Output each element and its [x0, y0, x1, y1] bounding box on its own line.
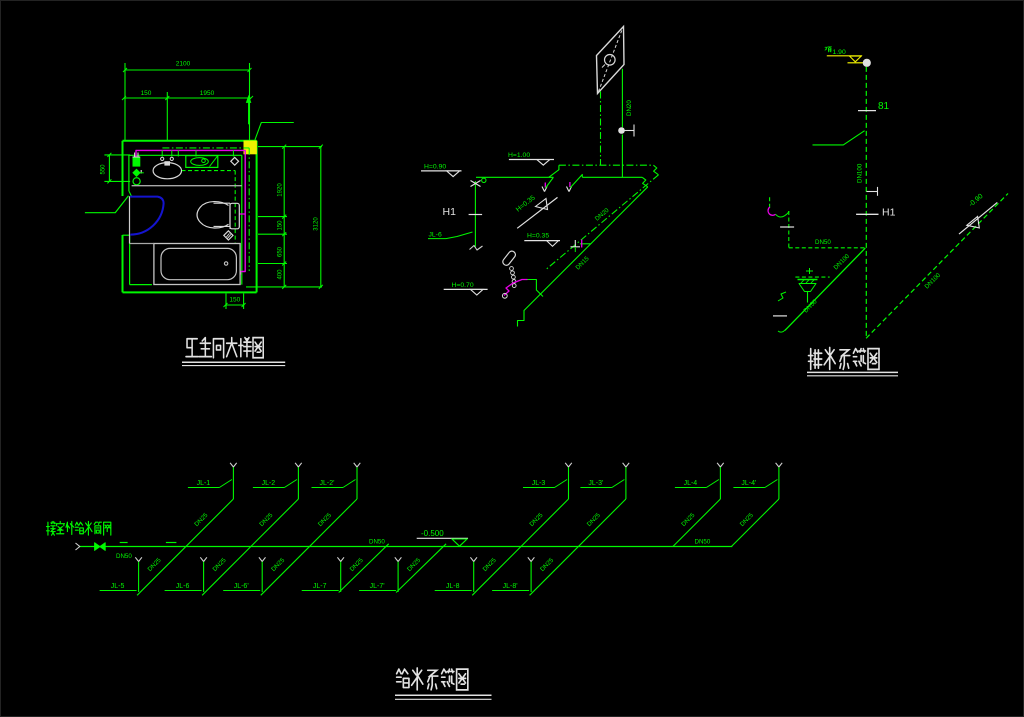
svg-text:JL-7: JL-7 [313, 583, 327, 590]
svg-text:DN100: DN100 [857, 163, 864, 183]
svg-text:2100: 2100 [176, 61, 191, 68]
svg-text:DN50: DN50 [116, 553, 132, 560]
svg-text:DN50: DN50 [369, 539, 385, 546]
svg-text:150: 150 [141, 90, 152, 97]
svg-text:3120: 3120 [314, 217, 320, 231]
svg-text:H1: H1 [882, 207, 896, 219]
svg-text:DN50: DN50 [695, 539, 711, 546]
svg-text:H1: H1 [443, 206, 457, 218]
svg-text:400: 400 [278, 269, 284, 280]
svg-text:1920: 1920 [278, 183, 284, 197]
svg-text:H=0.70: H=0.70 [452, 282, 474, 289]
svg-text:150: 150 [229, 297, 240, 304]
svg-text:DN20: DN20 [626, 100, 633, 116]
svg-text:JL-8': JL-8' [503, 583, 518, 590]
svg-text:550: 550 [101, 164, 107, 175]
svg-text:JL-3': JL-3' [588, 480, 603, 487]
svg-text:JL-6: JL-6 [429, 232, 442, 239]
svg-text:150: 150 [278, 220, 284, 231]
svg-text:JL-6': JL-6' [234, 583, 249, 590]
svg-text:JL-5: JL-5 [111, 583, 125, 590]
svg-text:H=0.90: H=0.90 [424, 164, 446, 171]
svg-text:1950: 1950 [200, 90, 215, 97]
svg-text:JL-3: JL-3 [532, 480, 546, 487]
svg-text:-0.500: -0.500 [421, 529, 444, 538]
svg-text:JL-2: JL-2 [262, 480, 276, 487]
svg-text:JL-2': JL-2' [320, 480, 335, 487]
svg-text:81: 81 [878, 101, 890, 112]
svg-text:JL-7': JL-7' [370, 583, 385, 590]
svg-text:DN50: DN50 [815, 239, 831, 246]
svg-text:1.90: 1.90 [833, 49, 846, 56]
svg-text:JL-8: JL-8 [446, 583, 460, 590]
svg-text:JL-4': JL-4' [741, 480, 756, 487]
svg-text:H=0.35: H=0.35 [527, 233, 549, 240]
svg-text:JL-4: JL-4 [684, 480, 698, 487]
svg-text:650: 650 [278, 246, 284, 257]
svg-text:H=1.00: H=1.00 [508, 152, 530, 159]
svg-text:JL-6: JL-6 [176, 583, 190, 590]
svg-text:JL-1: JL-1 [197, 480, 211, 487]
